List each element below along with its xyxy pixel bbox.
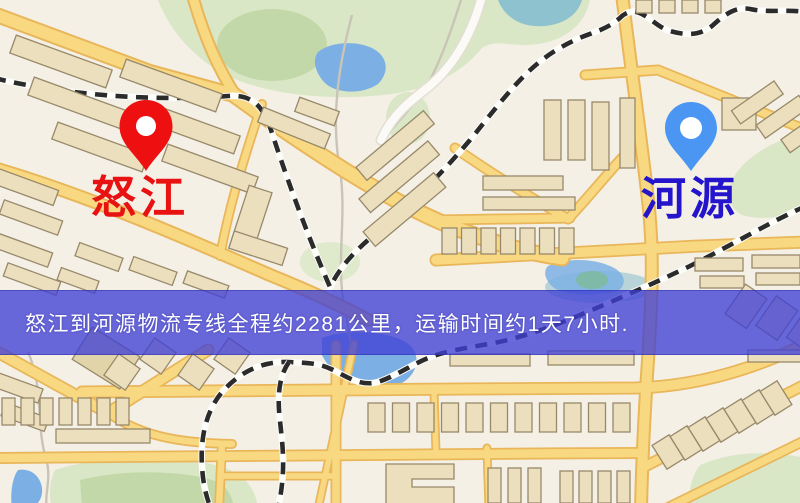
logistics-route-map: 怒江到河源物流专线全程约2281公里，运输时间约1天7小时. 怒江 河源 (0, 0, 800, 503)
river (11, 470, 42, 503)
pond (576, 271, 608, 289)
park-area (300, 242, 360, 282)
park-area (689, 453, 800, 503)
map-background (0, 0, 800, 503)
destination-pin-icon[interactable] (663, 101, 719, 172)
park-area (217, 9, 327, 81)
route-info-text: 怒江到河源物流专线全程约2281公里，运输时间约1天7小时. (25, 308, 629, 338)
destination-label: 河源 (641, 177, 739, 222)
origin-label: 怒江 (91, 176, 189, 221)
origin-pin-icon[interactable] (118, 99, 174, 172)
route-info-banner: 怒江到河源物流专线全程约2281公里，运输时间约1天7小时. (0, 290, 800, 355)
